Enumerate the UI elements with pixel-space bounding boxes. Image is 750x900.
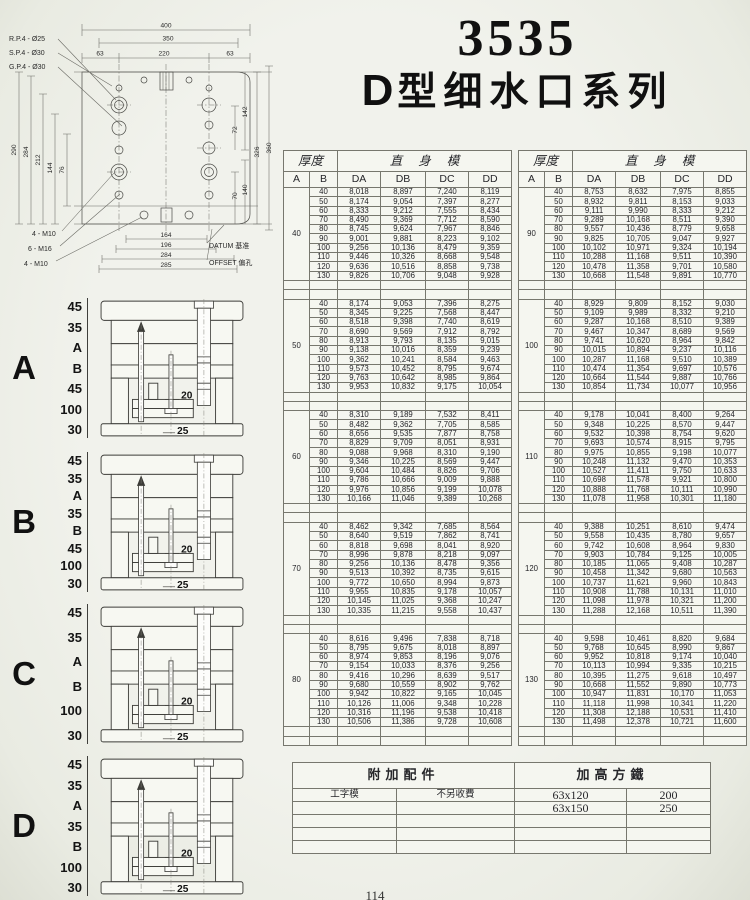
- cell-b-thickness: 120: [310, 485, 338, 494]
- accessories-header-left: 附加配件: [293, 763, 515, 789]
- cell-price: 10,016: [381, 346, 426, 355]
- cell-price: 7,568: [426, 308, 469, 317]
- cell-price: 9,558: [426, 606, 469, 615]
- cell-price: 10,484: [381, 466, 426, 475]
- empty-cell: [284, 401, 310, 410]
- empty-cell: [426, 290, 469, 299]
- cell-price: 11,998: [616, 699, 661, 708]
- cell-price: 9,657: [704, 531, 747, 540]
- cell-price: 8,333: [661, 206, 704, 215]
- cell-b-thickness: 70: [545, 215, 573, 224]
- mold-cross-section: 20 25: [96, 756, 248, 896]
- cell-price: 10,633: [704, 466, 747, 475]
- dim-142: 142: [242, 106, 249, 117]
- cell-price: 8,447: [469, 308, 512, 317]
- cell-price: 10,241: [381, 355, 426, 364]
- cell-price: 11,215: [381, 606, 426, 615]
- stack-dim-label: 100: [60, 861, 82, 874]
- empty-cell: [573, 624, 616, 633]
- cell-price: 8,590: [469, 215, 512, 224]
- table-row: 609,28710,1688,5109,389: [519, 318, 747, 327]
- accessories-table: 附加配件 加高方鐵 工字模 不另收費 63x120 200 63x150 250: [292, 762, 711, 854]
- cell-price: 10,131: [661, 587, 704, 596]
- cell-price: 10,435: [616, 531, 661, 540]
- cell-price: 9,620: [704, 429, 747, 438]
- page-number: 114: [0, 888, 750, 900]
- stack-dim-label: 45: [68, 758, 82, 771]
- dim-196: 196: [160, 242, 171, 249]
- cell-b-thickness: 90: [545, 234, 573, 243]
- cell-price: 8,668: [426, 253, 469, 262]
- cell-price: 8,616: [338, 634, 381, 643]
- cell-b-thickness: 50: [545, 197, 573, 206]
- empty-cell: [310, 280, 338, 289]
- cell-price: 9,111: [573, 206, 616, 215]
- header-thickness: 厚度: [284, 151, 338, 172]
- empty-cell: [616, 401, 661, 410]
- cell-price: 8,479: [426, 243, 469, 252]
- cell-price: 9,953: [338, 383, 381, 392]
- empty-cell: [338, 624, 381, 633]
- cell-price: 9,826: [338, 271, 381, 280]
- cell-price: 8,780: [661, 531, 704, 540]
- empty-cell: [704, 392, 747, 401]
- cell-price: 10,664: [573, 373, 616, 382]
- table-row: 11010,69811,5789,92110,800: [519, 476, 747, 485]
- empty-cell: [381, 290, 426, 299]
- cell-price: 9,256: [469, 662, 512, 671]
- table-row: 709,69310,5748,9159,795: [519, 439, 747, 448]
- cell-b-thickness: 40: [545, 188, 573, 197]
- cell-b-thickness: 80: [310, 448, 338, 457]
- cell-price: 9,738: [469, 262, 512, 271]
- empty-cell: [616, 513, 661, 522]
- empty-cell: [338, 615, 381, 624]
- stack-dim-label: 35: [68, 472, 82, 485]
- dimension-stack: 4535AB4510030: [40, 298, 88, 438]
- cell-price: 9,927: [704, 234, 747, 243]
- cell-b-thickness: 80: [545, 448, 573, 457]
- empty-cell: [573, 615, 616, 624]
- cell-price: 8,277: [469, 197, 512, 206]
- model-number: 3535: [295, 12, 740, 67]
- cell-b-thickness: 130: [545, 717, 573, 726]
- cell-price: 8,820: [661, 634, 704, 643]
- cell-price: 8,051: [426, 439, 469, 448]
- cell-price: 10,668: [573, 271, 616, 280]
- cell-b-thickness: 60: [545, 318, 573, 327]
- mold-diagram-b: B 4535A35B4510030: [8, 452, 258, 592]
- diagram-letter: B: [8, 452, 40, 592]
- header-col-dd: DD: [704, 172, 747, 188]
- accessory-note: 不另收費: [397, 789, 515, 802]
- spacer-row: [284, 624, 512, 633]
- cell-price: 8,792: [469, 327, 512, 336]
- cell-price: 9,408: [661, 559, 704, 568]
- cell-b-thickness: 120: [545, 708, 573, 717]
- cell-b-thickness: 60: [545, 652, 573, 661]
- cell-price: 10,395: [573, 671, 616, 680]
- dim-72: 72: [232, 126, 239, 134]
- cell-price: 9,447: [469, 457, 512, 466]
- callout-sp: S.P.4 - Ø30: [9, 50, 45, 57]
- mold-cross-section: 20 25: [96, 452, 248, 592]
- table-row: 709,90310,7849,12510,005: [519, 550, 747, 559]
- empty-cell: [704, 280, 747, 289]
- cell-price: 9,532: [573, 429, 616, 438]
- cell-price: 9,348: [573, 420, 616, 429]
- empty-cell: [310, 401, 338, 410]
- cell-price: 10,832: [381, 383, 426, 392]
- table-row: 809,41610,2968,6399,517: [284, 671, 512, 680]
- stack-dim-label: 35: [68, 321, 82, 334]
- spacer-row: [519, 513, 747, 522]
- cell-price: 8,018: [338, 188, 381, 197]
- cell-price: 9,342: [381, 522, 426, 531]
- empty-cell: [426, 736, 469, 745]
- mold-inner-dim-25: 25: [177, 732, 189, 743]
- cell-a-thickness: 80: [284, 634, 310, 727]
- cell-price: 9,709: [381, 439, 426, 448]
- empty-cell: [310, 727, 338, 736]
- cell-price: 9,680: [338, 680, 381, 689]
- cell-price: 9,097: [469, 550, 512, 559]
- mold-inner-dim-20: 20: [181, 390, 193, 401]
- stack-dim-label: B: [73, 840, 82, 853]
- table-row: 509,34810,2258,5709,447: [519, 420, 747, 429]
- cell-price: 10,668: [573, 680, 616, 689]
- cell-price: 10,194: [704, 243, 747, 252]
- table-row: 1209,63610,5168,8589,738: [284, 262, 512, 271]
- table-subheader-row: ABDADBDCDD: [519, 172, 747, 188]
- cell-price: 8,411: [469, 411, 512, 420]
- cell-price: 7,740: [426, 318, 469, 327]
- empty-cell: [469, 727, 512, 736]
- table-row: 8010,39511,2759,61810,497: [519, 671, 747, 680]
- cell-price: 11,168: [616, 253, 661, 262]
- cell-price: 9,569: [704, 327, 747, 336]
- stack-dim-label: 100: [60, 559, 82, 572]
- mold-graphic-slot: 20 25: [96, 298, 248, 438]
- cell-price: 10,005: [704, 550, 747, 559]
- dim-360: 360: [266, 142, 273, 153]
- table-row: 608,9749,8538,1969,076: [284, 652, 512, 661]
- cell-price: 9,558: [573, 531, 616, 540]
- cell-price: 9,324: [661, 243, 704, 252]
- empty-cell: [545, 401, 573, 410]
- cell-b-thickness: 80: [545, 225, 573, 234]
- cell-price: 9,463: [469, 355, 512, 364]
- cell-b-thickness: 70: [310, 327, 338, 336]
- cell-price: 10,296: [381, 671, 426, 680]
- cell-b-thickness: 70: [545, 662, 573, 671]
- cell-price: 9,873: [469, 578, 512, 587]
- cell-price: 10,458: [573, 569, 616, 578]
- riser-size: 63x120: [515, 789, 627, 802]
- cell-b-thickness: 70: [310, 662, 338, 671]
- cell-price: 9,390: [704, 215, 747, 224]
- cell-price: 8,640: [338, 531, 381, 540]
- cell-b-thickness: 130: [545, 494, 573, 503]
- cell-price: 8,795: [426, 364, 469, 373]
- cell-price: 11,010: [704, 587, 747, 596]
- empty-cell: [284, 624, 310, 633]
- price-table-right: 厚度直身模ABDADBDCDD90408,7538,6327,9758,8555…: [518, 150, 747, 746]
- cell-b-thickness: 120: [545, 373, 573, 382]
- cell-b-thickness: 100: [310, 355, 338, 364]
- cell-price: 12,168: [616, 606, 661, 615]
- table-row: 12010,66411,5449,88710,766: [519, 373, 747, 382]
- table-row: 13010,85411,73410,07710,956: [519, 383, 747, 392]
- table-row: 609,74210,6088,9649,830: [519, 541, 747, 550]
- cell-b-thickness: 70: [545, 327, 573, 336]
- table-row: 1009,60410,4848,8269,706: [284, 466, 512, 475]
- cell-price: 11,552: [616, 680, 661, 689]
- empty-cell: [426, 513, 469, 522]
- cell-price: 9,447: [704, 420, 747, 429]
- cell-price: 11,958: [616, 494, 661, 503]
- spacer-row: [284, 290, 512, 299]
- cell-price: 10,316: [338, 708, 381, 717]
- cell-price: 8,478: [426, 559, 469, 568]
- cell-price: 9,538: [426, 708, 469, 717]
- cell-price: 10,698: [573, 476, 616, 485]
- cell-price: 11,358: [616, 262, 661, 271]
- cell-b-thickness: 120: [310, 597, 338, 606]
- cell-price: 8,359: [426, 346, 469, 355]
- cell-price: 10,225: [616, 420, 661, 429]
- cell-price: 9,825: [573, 234, 616, 243]
- dim-144: 144: [47, 162, 54, 173]
- cell-b-thickness: 110: [545, 476, 573, 485]
- table-row: 909,13810,0168,3599,239: [284, 346, 512, 355]
- cell-price: 10,478: [573, 262, 616, 271]
- table-row: 13010,16611,0469,38910,268: [284, 494, 512, 503]
- cell-price: 10,185: [573, 559, 616, 568]
- cell-b-thickness: 110: [310, 699, 338, 708]
- cell-price: 11,006: [381, 699, 426, 708]
- cell-price: 10,818: [616, 652, 661, 661]
- table-row: 8010,18511,0659,40810,287: [519, 559, 747, 568]
- empty-cell: [661, 736, 704, 745]
- cell-price: 10,077: [661, 383, 704, 392]
- empty-cell: [426, 504, 469, 513]
- empty-cell: [616, 280, 661, 289]
- header-col-dc: DC: [661, 172, 704, 188]
- empty-cell: [519, 736, 545, 745]
- empty-cell: [284, 280, 310, 289]
- empty-cell: [661, 615, 704, 624]
- header-col-db: DB: [616, 172, 661, 188]
- title-block: 3535 D型细水口系列: [295, 12, 740, 115]
- table-row: 1109,57310,4528,7959,674: [284, 364, 512, 373]
- cell-b-thickness: 60: [545, 429, 573, 438]
- cell-price: 10,580: [704, 262, 747, 271]
- header-col-dc: DC: [426, 172, 469, 188]
- cell-price: 10,835: [381, 587, 426, 596]
- cell-price: 10,341: [661, 699, 704, 708]
- cell-price: 8,510: [661, 318, 704, 327]
- stack-dim-label: 30: [68, 577, 82, 590]
- cell-b-thickness: 40: [310, 299, 338, 308]
- cell-price: 9,237: [661, 346, 704, 355]
- dim-212: 212: [35, 154, 42, 165]
- cell-a-thickness: 90: [519, 188, 545, 281]
- table-row: 508,3459,2257,5688,447: [284, 308, 512, 317]
- empty-cell: [310, 290, 338, 299]
- cell-price: 10,894: [616, 346, 661, 355]
- cell-price: 9,513: [338, 569, 381, 578]
- cell-price: 11,410: [704, 708, 747, 717]
- cell-price: 8,745: [338, 225, 381, 234]
- cell-price: 11,025: [381, 597, 426, 606]
- cell-price: 9,175: [426, 383, 469, 392]
- cell-price: 10,225: [381, 457, 426, 466]
- table-row: 10010,52711,4119,75010,633: [519, 466, 747, 475]
- cell-price: 8,310: [338, 411, 381, 420]
- cell-price: 8,795: [338, 643, 381, 652]
- empty-cell: [704, 727, 747, 736]
- cell-b-thickness: 60: [545, 541, 573, 550]
- table-row: 809,0889,9688,3109,190: [284, 448, 512, 457]
- table-row: 80408,6169,4967,8388,718: [284, 634, 512, 643]
- table-header-row: 厚度直身模: [284, 151, 512, 172]
- cell-price: 9,368: [426, 597, 469, 606]
- cell-price: 11,200: [704, 597, 747, 606]
- cell-price: 8,985: [426, 373, 469, 382]
- cell-b-thickness: 100: [545, 690, 573, 699]
- cell-price: 10,721: [661, 717, 704, 726]
- cell-price: 10,531: [661, 708, 704, 717]
- table-row: 608,6569,5357,8778,758: [284, 429, 512, 438]
- cell-price: 8,332: [661, 308, 704, 317]
- cell-price: 10,335: [338, 606, 381, 615]
- cell-a-thickness: 110: [519, 411, 545, 504]
- table-row: 509,55810,4358,7809,657: [519, 531, 747, 540]
- cell-price: 11,386: [381, 717, 426, 726]
- series-type-letter: D: [362, 66, 394, 115]
- cell-price: 9,389: [426, 494, 469, 503]
- catalog-page: 400 350 63 220 63 290 284 212 144 76 142…: [0, 0, 750, 900]
- cell-b-thickness: 130: [310, 606, 338, 615]
- spacer-row: [519, 615, 747, 624]
- cell-price: 8,929: [573, 299, 616, 308]
- cell-b-thickness: 110: [310, 253, 338, 262]
- empty-cell: [519, 504, 545, 513]
- cell-price: 9,615: [469, 569, 512, 578]
- cell-price: 11,168: [616, 355, 661, 364]
- cell-price: 11,046: [381, 494, 426, 503]
- cell-price: 9,033: [704, 197, 747, 206]
- empty-cell: [338, 727, 381, 736]
- cell-price: 9,618: [661, 671, 704, 680]
- empty-cell: [573, 290, 616, 299]
- dim-76: 76: [59, 166, 66, 174]
- cell-price: 10,301: [661, 494, 704, 503]
- cell-price: 8,376: [426, 662, 469, 671]
- diagram-letter: C: [8, 604, 40, 744]
- cell-price: 8,689: [661, 327, 704, 336]
- spacer-row: [284, 513, 512, 522]
- cell-price: 9,968: [381, 448, 426, 457]
- header-col-b: B: [310, 172, 338, 188]
- cell-b-thickness: 80: [545, 336, 573, 345]
- cell-price: 9,793: [381, 336, 426, 345]
- empty-cell: [616, 727, 661, 736]
- cell-b-thickness: 80: [545, 671, 573, 680]
- cell-price: 11,544: [616, 373, 661, 382]
- cell-price: 8,462: [338, 522, 381, 531]
- dim-284-bottom: 284: [160, 252, 171, 259]
- stack-dim-label: 100: [60, 403, 82, 416]
- cell-price: 8,656: [338, 429, 381, 438]
- cell-price: 9,264: [704, 411, 747, 420]
- empty-cell: [426, 280, 469, 289]
- cell-price: 10,608: [616, 541, 661, 550]
- empty-cell: [469, 401, 512, 410]
- cell-price: 11,118: [573, 699, 616, 708]
- cell-b-thickness: 100: [310, 243, 338, 252]
- cell-b-thickness: 110: [545, 587, 573, 596]
- table-row: 13010,50611,3869,72810,608: [284, 717, 512, 726]
- cell-price: 9,706: [469, 466, 512, 475]
- empty-cell: [469, 513, 512, 522]
- table-row: 709,15410,0338,3769,256: [284, 662, 512, 671]
- cell-price: 10,843: [704, 578, 747, 587]
- empty-cell: [519, 513, 545, 522]
- cell-price: 10,516: [381, 262, 426, 271]
- cell-price: 10,116: [704, 346, 747, 355]
- cell-price: 11,578: [616, 476, 661, 485]
- stack-dim-label: B: [73, 524, 82, 537]
- cell-price: 8,569: [426, 457, 469, 466]
- mold-inner-dim-25: 25: [177, 580, 189, 591]
- cell-price: 8,196: [426, 652, 469, 661]
- cell-price: 8,913: [338, 336, 381, 345]
- header-straight-mold: 直身模: [338, 151, 512, 172]
- cell-price: 9,853: [381, 652, 426, 661]
- table-row: 1109,95510,8359,17810,057: [284, 587, 512, 596]
- cell-price: 8,153: [661, 197, 704, 206]
- empty-cell: [284, 615, 310, 624]
- table-row: 9010,01510,8949,23710,116: [519, 346, 747, 355]
- table-row: 608,8189,6988,0418,920: [284, 541, 512, 550]
- cell-price: 9,741: [573, 336, 616, 345]
- cell-price: 8,400: [661, 411, 704, 420]
- empty-cell: [519, 392, 545, 401]
- dim-63-left: 63: [96, 51, 104, 58]
- cell-price: 8,223: [426, 234, 469, 243]
- cell-price: 9,190: [469, 448, 512, 457]
- spacer-row: [284, 401, 512, 410]
- cell-price: 10,706: [381, 271, 426, 280]
- cell-price: 11,600: [704, 717, 747, 726]
- cell-price: 10,287: [573, 355, 616, 364]
- empty-cell: [704, 513, 747, 522]
- dim-290: 290: [11, 144, 18, 155]
- empty-cell: [338, 513, 381, 522]
- cell-a-thickness: 70: [284, 522, 310, 615]
- header-col-da: DA: [338, 172, 381, 188]
- cell-price: 9,346: [338, 457, 381, 466]
- cell-price: 10,136: [381, 559, 426, 568]
- cell-price: 10,574: [616, 439, 661, 448]
- cell-price: 10,766: [704, 373, 747, 382]
- cell-price: 9,955: [338, 587, 381, 596]
- table-row: 70408,4629,3427,6858,564: [284, 522, 512, 531]
- cell-price: 9,015: [469, 336, 512, 345]
- cell-price: 10,908: [573, 587, 616, 596]
